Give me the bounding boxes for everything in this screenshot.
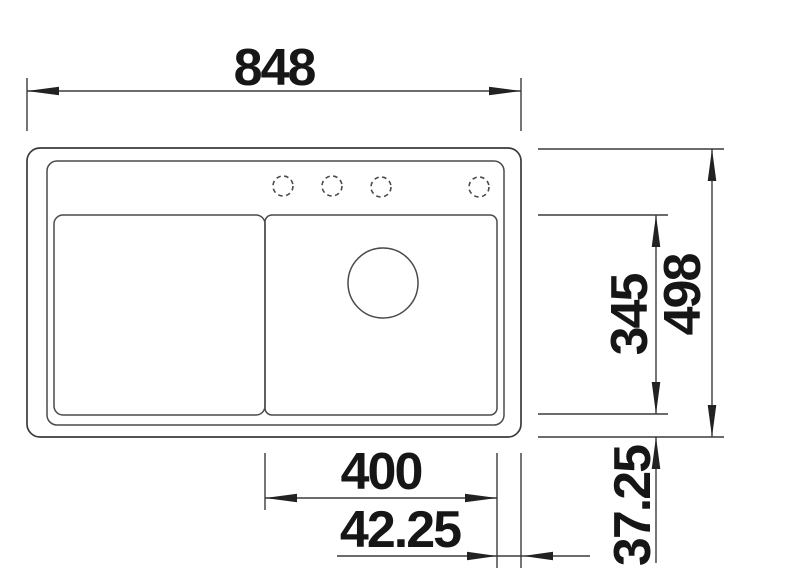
arrowhead-right [467, 552, 497, 561]
tap-hole-4 [469, 177, 489, 197]
dim-label-overall-depth: 498 [654, 254, 712, 336]
dim-label-bowl-depth: 345 [601, 274, 659, 356]
tap-hole-2 [322, 176, 342, 196]
bowl [265, 215, 497, 415]
dim-label-overall-width: 848 [234, 39, 316, 97]
drainboard [54, 215, 265, 415]
sink-top-view [27, 148, 521, 437]
dim-overall-width: 848 [27, 39, 521, 131]
dim-label-bowl-width: 400 [341, 443, 422, 501]
arrowhead-right [465, 494, 497, 503]
tap-hole-3 [371, 177, 391, 197]
tap-hole-1 [273, 176, 293, 196]
arrowhead-up [652, 215, 661, 247]
arrowhead-right [489, 87, 521, 96]
dim-bottom-offset: 37.25 [604, 437, 662, 566]
arrowhead-down [708, 405, 717, 437]
dim-label-side-offset: 42.25 [340, 501, 461, 559]
arrowhead-down [652, 382, 661, 414]
arrowhead-up [708, 149, 717, 181]
arrowhead-left [27, 87, 59, 96]
arrowhead-left [265, 494, 297, 503]
dim-bowl-depth: 345 [538, 215, 668, 414]
technical-drawing: 848 498 345 37.25 [0, 0, 800, 587]
drain-hole [348, 248, 418, 318]
arrowhead-left [523, 552, 553, 561]
sink-rim [47, 161, 504, 425]
dim-label-bottom-offset: 37.25 [604, 445, 662, 566]
sink-drawing-canvas: 848 498 345 37.25 [0, 0, 800, 587]
